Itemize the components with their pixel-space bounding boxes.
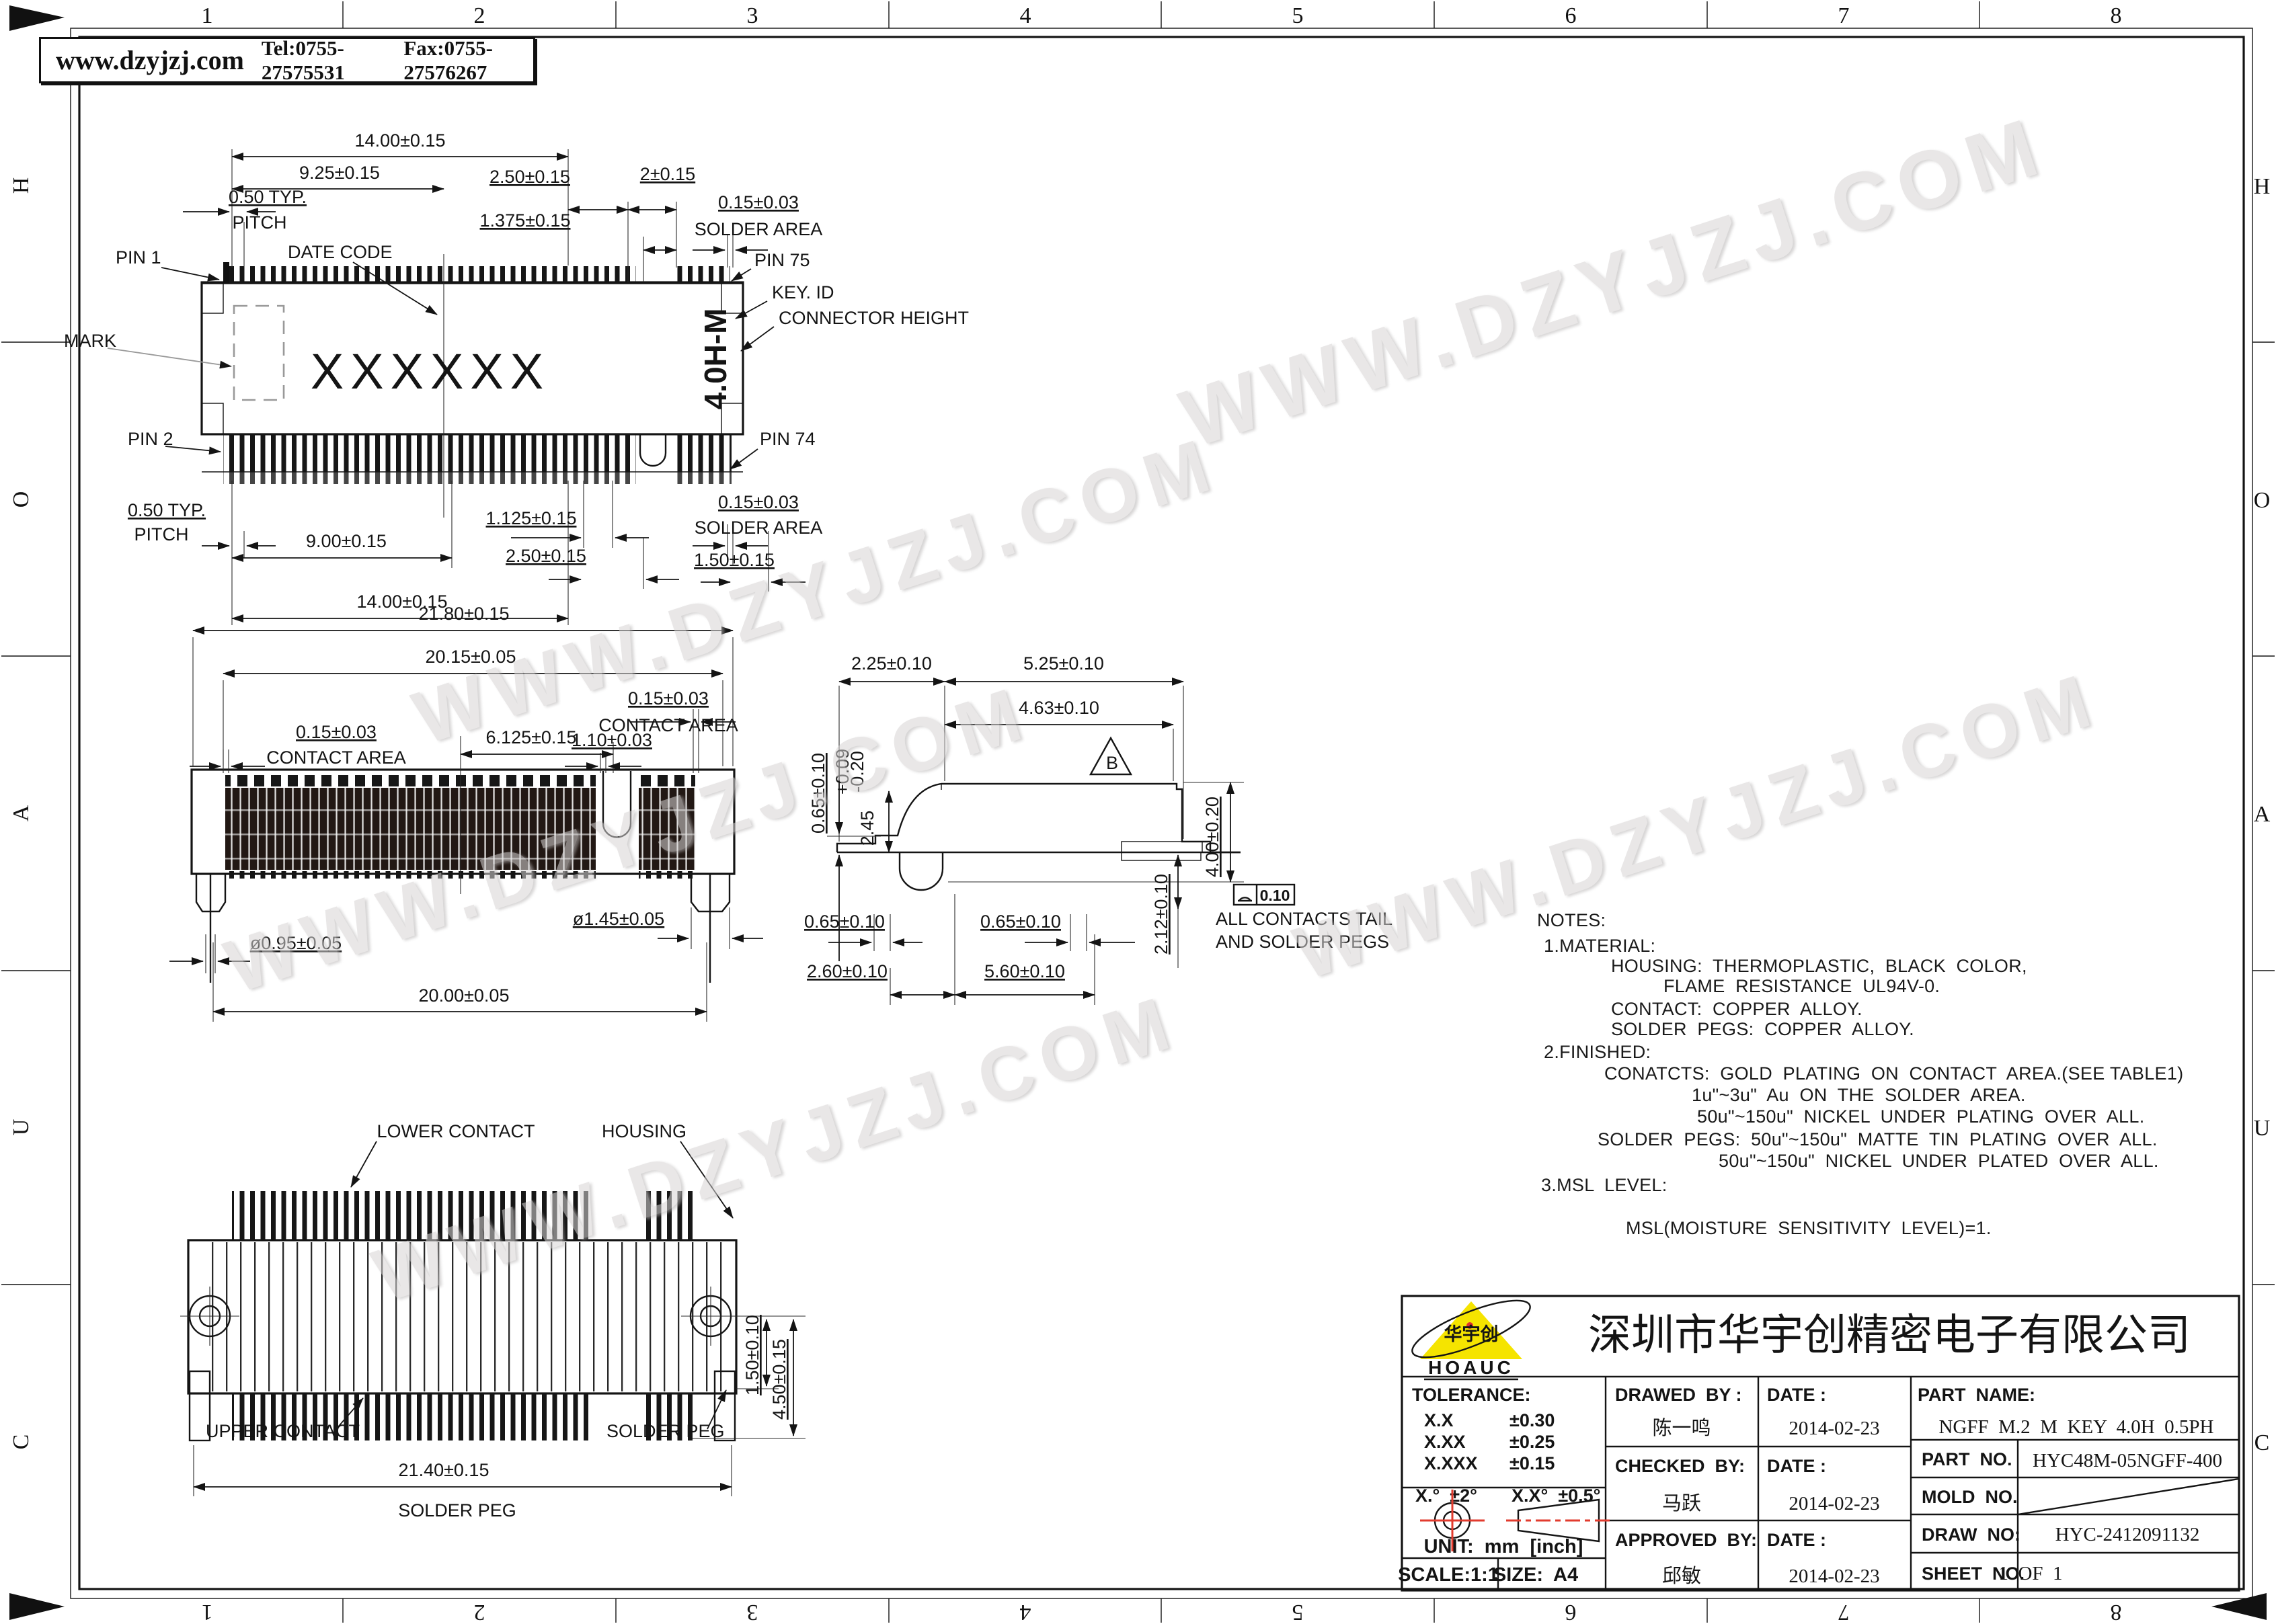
dim-label: 0.15±0.03 [296, 722, 377, 742]
notes-line: 50u"~150u" NICKEL UNDER PLATING OVER ALL… [1697, 1106, 2145, 1127]
zone-letter: A [9, 805, 34, 821]
part-no-value: HYC48M-05NGFF-400 [2033, 1450, 2222, 1471]
tol-row: ±0.25 [1509, 1432, 1555, 1452]
part-no-label: PART NO. [1922, 1449, 2012, 1469]
logo-cn-text: 华宇创 [1444, 1324, 1499, 1344]
dim-label: 0.65±0.10 [980, 911, 1061, 932]
date-value: 2014-02-23 [1789, 1418, 1879, 1439]
notes-line: SOLDER PEGS: 50u"~150u" MATTE TIN PLATIN… [1598, 1129, 2158, 1150]
notes-line: 1u"~3u" Au ON THE SOLDER AREA. [1692, 1085, 2026, 1106]
website-text: www.dzyjzj.com [56, 44, 244, 76]
date-code-label: DATE CODE [288, 242, 393, 262]
zone-number: 3 [747, 1600, 758, 1624]
dim-label: 0.65±0.10 [804, 911, 885, 932]
side-view: B 2.25±0.10 4.63±0.10 5.25±0.10 4.63±0.1… [804, 653, 1392, 1005]
dim-label: 0.15±0.03 [628, 688, 709, 708]
zone-number: 7 [1838, 3, 1850, 28]
date-value: 2014-02-23 [1789, 1493, 1879, 1514]
drawing-canvas: 1 2 3 4 5 6 7 8 1 2 3 4 5 6 7 8 H O A U … [0, 0, 2276, 1624]
connector-height-label: CONNECTOR HEIGHT [779, 308, 969, 328]
corner-arrow-icon [2211, 1593, 2267, 1620]
dim-label: 2.25±0.10 [851, 653, 932, 674]
dim-label: 9.25±0.15 [299, 163, 380, 183]
tol-row: X.XX [1424, 1432, 1466, 1452]
dim-label: 2±0.15 [640, 164, 695, 184]
size-label: SIZE: A4 [1493, 1564, 1578, 1586]
key-id-label: KEY. ID [772, 282, 834, 302]
dim-label: 0.50 TYP. [128, 500, 206, 520]
notes-line: 1.MATERIAL: [1544, 936, 1655, 957]
tol-angle: X.X° ±0.5° [1512, 1486, 1600, 1506]
logo-brand-text: HOAUC [1428, 1357, 1514, 1378]
dim-label: 2.12±0.10 [1151, 874, 1171, 955]
company-name: 深圳市华宇创精密电子有限公司 [1588, 1311, 2191, 1359]
side-note: AND SOLDER PEGS [1216, 932, 1389, 952]
notes-title: NOTES: [1537, 910, 1606, 931]
dim-label: 4.50±0.15 [769, 1339, 789, 1420]
corner-arrow-icon [9, 1593, 65, 1620]
title-block: 华宇创 HOAUC 深圳市华宇创精密电子有限公司 TOLERANCE: X.X … [1398, 1290, 2239, 1590]
zone-number: 2 [474, 3, 485, 28]
checker-name: 马跃 [1662, 1493, 1701, 1514]
dim-label: 20.00±0.05 [419, 985, 510, 1006]
dim-label: ø1.45±0.05 [573, 909, 664, 929]
zone-number: 8 [2111, 1600, 2122, 1624]
date-label: DATE : [1767, 1385, 1826, 1405]
tol-row: ±0.30 [1509, 1410, 1555, 1430]
lower-contact-label: LOWER CONTACT [377, 1121, 535, 1141]
mold-no-label: MOLD NO. [1922, 1487, 2018, 1507]
date-label: DATE : [1767, 1456, 1826, 1476]
corner-arrow-icon [9, 5, 65, 31]
zone-letter: H [9, 177, 34, 194]
notes-line: HOUSING: THERMOPLASTIC, BLACK COLOR, [1611, 956, 2027, 977]
zone-number: 5 [1292, 3, 1304, 28]
dim-label: SOLDER AREA [695, 518, 823, 538]
zone-number: 7 [1838, 1600, 1850, 1624]
zone-letter: C [9, 1434, 34, 1450]
tol-row: ±0.15 [1509, 1453, 1555, 1473]
tol-row: X.XXX [1424, 1453, 1478, 1473]
dim-label: 1.50±0.15 [694, 550, 775, 570]
tel-text: Tel:0755-27575531 [262, 36, 386, 85]
tol-angle: X.° ±2° [1415, 1486, 1477, 1506]
pin75-label: PIN 75 [754, 250, 810, 270]
zone-number: 4 [1020, 3, 1031, 28]
notes-line: 50u"~150u" NICKEL UNDER PLATED OVER ALL. [1719, 1151, 2159, 1172]
dim-label: 1.50±0.10 [742, 1315, 762, 1395]
zone-number: 8 [2111, 3, 2122, 28]
flatness-callout: 0.10 [1234, 885, 1294, 905]
dim-label: 0.50 TYP. [229, 187, 307, 207]
dim-label: 14.00±0.15 [355, 130, 446, 151]
front-view: 21.80±0.15 20.15±0.05 0.15±0.03 CONTACT … [169, 604, 763, 1022]
pin2-label: PIN 2 [128, 429, 173, 449]
tol-row: X.X [1424, 1410, 1454, 1430]
dim-label: 6.125±0.15 [486, 727, 577, 747]
dim-label: 21.80±0.15 [419, 604, 510, 624]
dim-label: CONTACT AREA [266, 747, 406, 768]
flatness-value: 0.10 [1260, 887, 1290, 904]
dim-label: 2.50±0.15 [506, 546, 586, 566]
dim-label: PITCH [134, 524, 189, 544]
zone-number: 4 [1020, 1600, 1031, 1624]
dim-label: 0.15±0.03 [718, 492, 799, 512]
solder-peg-label: SOLDER PEG [606, 1421, 725, 1441]
draw-no-value: HYC-2412091132 [2055, 1524, 2200, 1545]
dim-label: 1.125±0.15 [486, 508, 577, 528]
header-contact-box: www.dzyjzj.com Tel:0755-27575531 Fax:075… [39, 37, 535, 83]
checked-by-label: CHECKED BY: [1615, 1456, 1745, 1476]
zone-number: 5 [1292, 1600, 1304, 1624]
part-name-value: NGFF M.2 M KEY 4.0H 0.5PH [1938, 1416, 2213, 1438]
dim-label: 4.00±0.20 [1202, 797, 1222, 877]
date-value: 2014-02-23 [1789, 1566, 1879, 1587]
dim-label: 2.50±0.15 [489, 167, 570, 187]
dim-label: 5.25±0.10 [1023, 653, 1104, 674]
dim-label: 2.60±0.10 [807, 961, 888, 981]
drawer-name: 陈一鸣 [1652, 1417, 1711, 1439]
zone-number: 1 [202, 1600, 213, 1624]
dim-label: 5.60±0.10 [984, 961, 1065, 981]
dim-label: ø0.95±0.05 [250, 933, 342, 953]
dim-label: 20.15±0.05 [426, 647, 516, 667]
dim-label: 1.10±0.03 [572, 730, 652, 750]
datum-b-label: B [1106, 753, 1118, 773]
approver-name: 邱敏 [1662, 1565, 1701, 1587]
zone-letter: O [9, 491, 34, 508]
zone-number: 2 [474, 1600, 485, 1624]
zone-letter: C [2254, 1430, 2270, 1455]
pin1-label: PIN 1 [116, 247, 161, 268]
solder-peg-label: SOLDER PEG [398, 1500, 516, 1520]
zone-number: 6 [1565, 1600, 1577, 1624]
drawing-sheet: 1 2 3 4 5 6 7 8 1 2 3 4 5 6 7 8 H O A U … [0, 0, 2276, 1624]
dim-label: 2.45 [857, 811, 877, 846]
housing-label: HOUSING [602, 1121, 686, 1141]
connector-height-marking: 4.0H-M [698, 309, 733, 410]
zone-number: 6 [1565, 3, 1577, 28]
zone-letter: U [2254, 1116, 2271, 1141]
side-note: ALL CONTACTS TAIL [1216, 909, 1392, 929]
bottom-view: LOWER CONTACT HOUSING 1.50±0.10 4.50±0.1… [180, 1121, 806, 1520]
draw-no-label: DRAW NO: [1922, 1525, 2020, 1545]
zone-letter: O [2254, 488, 2271, 513]
fax-text: Fax:0755-27576267 [403, 36, 533, 85]
company-logo: 华宇创 HOAUC [1406, 1290, 1536, 1379]
notes-line: 3.MSL LEVEL: [1541, 1175, 1667, 1196]
notes-line: SOLDER PEGS: COPPER ALLOY. [1611, 1019, 1914, 1040]
dim-label: SOLDER AREA [695, 219, 823, 239]
zone-number: 1 [202, 3, 213, 28]
mark-label: MARK [64, 331, 116, 351]
notes-line: MSL(MOISTURE SENSITIVITY LEVEL)=1. [1626, 1218, 1992, 1239]
notes-line: CONTACT: COPPER ALLOY. [1611, 999, 1862, 1020]
zone-letter: H [2254, 174, 2271, 199]
notes-line: 2.FINISHED: [1544, 1042, 1651, 1063]
part-name-label: PART NAME: [1918, 1385, 2035, 1405]
approved-by-label: APPROVED BY: [1615, 1530, 1757, 1550]
dim-label: 1.375±0.15 [480, 210, 571, 231]
unit-label: UNIT: mm [inch] [1424, 1536, 1583, 1557]
drawed-by-label: DRAWED BY : [1615, 1385, 1742, 1405]
zone-letter: A [2254, 802, 2271, 827]
zone-number: 3 [747, 3, 758, 28]
date-code-marking: XXXXXX [311, 343, 550, 399]
notes-line: FLAME RESISTANCE UL94V-0. [1663, 976, 1940, 997]
dim-label: -0.20 [847, 751, 867, 793]
pin74-label: PIN 74 [760, 429, 816, 449]
dim-label: 0.65±0.10 [808, 753, 828, 834]
dim-label: 9.00±0.15 [306, 531, 387, 551]
upper-contact-label: UPPER CONTACT [206, 1421, 360, 1441]
dim-label: 4.63±0.10 [1019, 698, 1099, 718]
scale-label: SCALE:1:1 [1398, 1564, 1499, 1586]
date-label: DATE : [1767, 1530, 1826, 1550]
dim-label: 21.40±0.15 [399, 1460, 489, 1480]
dim-label: PITCH [233, 212, 287, 233]
tolerance-label: TOLERANCE: [1412, 1385, 1531, 1405]
sheet-no-value: 1 OF 1 [1998, 1563, 2062, 1584]
top-view: XXXXXX 4.0H-M [64, 130, 969, 625]
notes-line: CONATCTS: GOLD PLATING ON CONTACT AREA.(… [1604, 1063, 2183, 1084]
mark-zone [234, 306, 284, 400]
dim-label: 0.15±0.03 [718, 192, 799, 212]
zone-letter: U [9, 1119, 34, 1136]
